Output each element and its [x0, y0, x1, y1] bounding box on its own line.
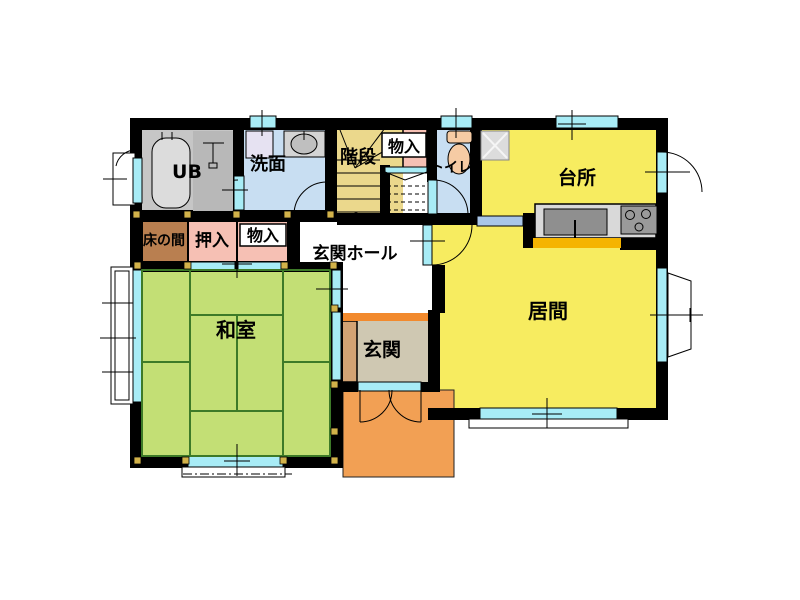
wall-hall-top	[337, 213, 480, 225]
label-genkan: 玄関	[363, 338, 401, 361]
floor-plan-canvas: UB 洗面 階段 物入 トイレ 台所 床の間 押入 物入 玄関ホール 和室 玄関…	[0, 0, 800, 600]
pillar	[134, 262, 141, 269]
hall-ima-door-leaf	[423, 225, 432, 265]
label-monoire-lower: 物入	[247, 226, 279, 245]
ub-door-leaf	[234, 176, 244, 210]
pillar	[182, 457, 189, 464]
wall-genkan-door-left	[343, 382, 358, 392]
wall-monoire-hall	[288, 215, 300, 272]
wall-hall-ima-top	[432, 213, 445, 225]
label-genkan-hall: 玄関ホール	[313, 243, 398, 264]
wall-genkan-ima	[428, 310, 440, 392]
label-ub: UB	[172, 161, 202, 183]
floor-plan: UB 洗面 階段 物入 トイレ 台所 床の間 押入 物入 玄関ホール 和室 玄関…	[0, 0, 800, 600]
ima-window-outer-frame	[469, 419, 628, 428]
pillar	[280, 457, 287, 464]
pillar	[284, 211, 291, 218]
wall-senmen-kaidan	[325, 118, 337, 222]
toilet-door-leaf	[428, 180, 437, 214]
pillar	[184, 211, 191, 218]
pillar	[233, 211, 240, 218]
counter-edge-strip	[533, 238, 621, 248]
kitchen-ima-sliding-door	[477, 216, 523, 226]
understairs-closet-door	[385, 167, 427, 173]
label-oshiire: 押入	[195, 230, 229, 251]
ub-left-window	[133, 158, 142, 203]
washitsu-shutter-box	[111, 267, 133, 404]
wall-genkan-door-right	[421, 382, 428, 392]
pillar	[331, 457, 338, 464]
pillar	[134, 457, 141, 464]
wall-below-stove	[620, 238, 668, 250]
agari-kamachi-step	[337, 313, 428, 321]
kitchen-top-window	[556, 116, 618, 128]
toilet-tank-icon	[447, 131, 472, 143]
room-genkan-hall-lower	[343, 262, 432, 313]
genkan-entrance-door	[358, 382, 421, 391]
label-daidokoro: 台所	[558, 166, 596, 189]
label-washitsu: 和室	[216, 318, 256, 342]
stove-icon	[621, 206, 657, 234]
wall-hall-ima	[432, 265, 445, 313]
pillar	[133, 211, 140, 218]
pillar	[331, 305, 338, 312]
washitsu-window-outer-frame	[182, 467, 285, 477]
pillar	[184, 262, 191, 269]
pillar	[327, 211, 334, 218]
label-senmen: 洗面	[250, 153, 286, 175]
pillar	[281, 262, 288, 269]
washitsu-genkan-sliding-door	[332, 312, 341, 380]
label-tokonoma: 床の間	[143, 232, 185, 249]
pillar	[331, 381, 338, 388]
senmen-top-window	[250, 116, 276, 128]
label-ima: 居間	[528, 299, 568, 323]
label-kaidan: 階段	[340, 146, 377, 168]
pillar	[331, 428, 338, 435]
washitsu-left-window	[133, 270, 142, 402]
label-monoire-upper: 物入	[388, 137, 420, 156]
label-toilet: トイレ	[430, 160, 472, 176]
